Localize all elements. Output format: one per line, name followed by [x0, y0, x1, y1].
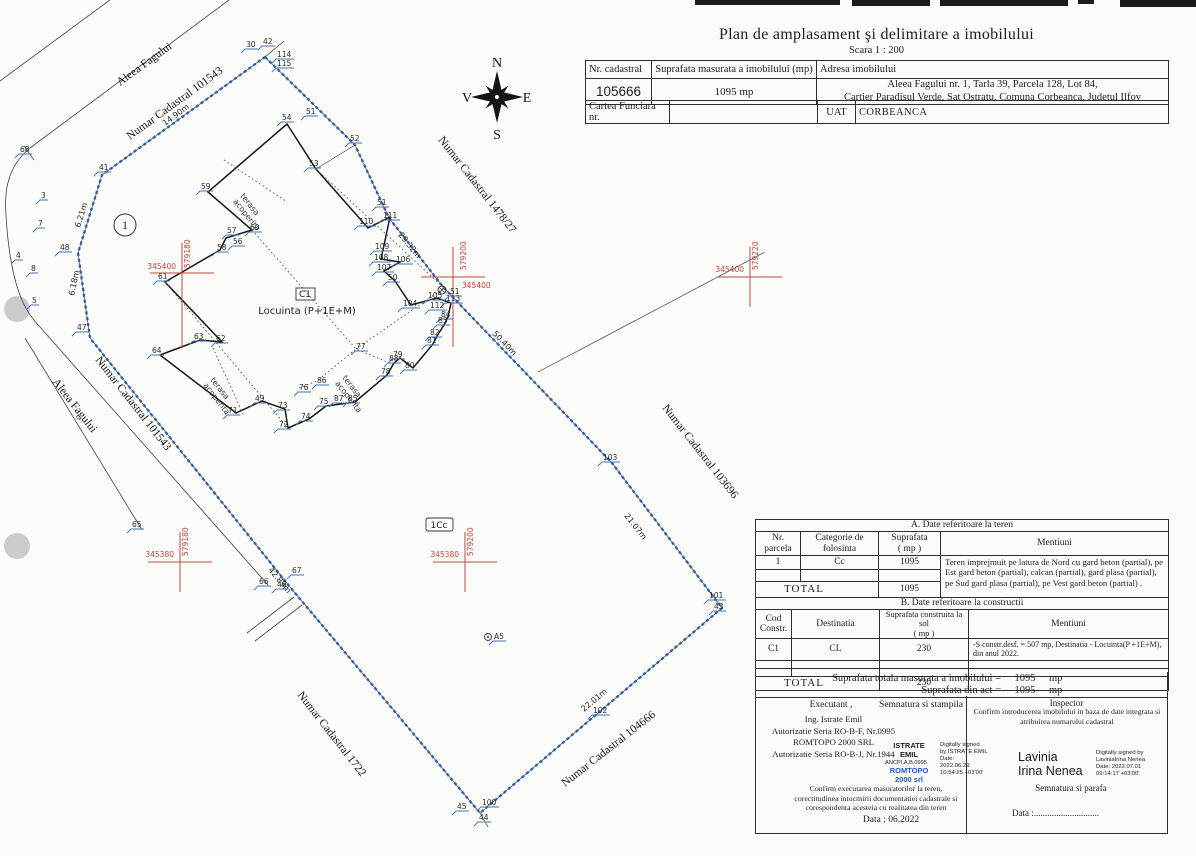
cell-suprafata: 1095 — [879, 556, 941, 570]
svg-text:66: 66 — [259, 577, 269, 586]
svg-text:112: 112 — [430, 301, 445, 310]
executant-confirmation: Confirm executarea masuratorilor la tere… — [790, 784, 962, 813]
svg-text:80: 80 — [405, 361, 415, 370]
svg-text:579220: 579220 — [751, 241, 760, 270]
point-label: 56 — [228, 237, 245, 250]
col-nr-parcela: Nr. parcela — [756, 532, 801, 556]
table-a-caption: A. Date referitoare la teren — [756, 520, 1169, 532]
cell-categorie: Cc — [801, 556, 879, 570]
executant-name: Ing. Istrate Emil — [756, 714, 911, 726]
col-mentiuni: Mentiuni — [941, 532, 1169, 556]
compass-n: N — [492, 56, 502, 71]
col-mentiuni-b: Mentiuni — [969, 610, 1169, 639]
building-label: C1 Locuinta (P+1E+M) — [258, 288, 356, 317]
point-label: 67 — [287, 566, 304, 579]
svg-text:68: 68 — [20, 145, 30, 154]
total-value: 1095 — [879, 582, 941, 598]
grid-coordinate-crosses: 3454005791803454005792003454005792203453… — [145, 239, 782, 592]
svg-text:58: 58 — [217, 243, 227, 252]
svg-text:109: 109 — [375, 242, 390, 251]
svg-text:579180: 579180 — [181, 527, 190, 556]
cartea-funciara-value — [670, 101, 818, 124]
empty-cell — [756, 660, 792, 668]
point-label: 76 — [294, 383, 311, 396]
point-label: 59 — [196, 182, 213, 195]
property-boundary — [78, 57, 722, 813]
hole-punch-marks — [4, 296, 30, 559]
col-suprafata-sol: Suprafata construita la sol ( mp ) — [880, 610, 969, 639]
point-label: 110 — [354, 217, 376, 230]
svg-text:65: 65 — [132, 520, 142, 529]
scan-artifact-top-bars — [695, 0, 1196, 7]
svg-text:45: 45 — [457, 802, 467, 811]
svg-text:4: 4 — [16, 251, 21, 260]
totals-section: Suprafata totala masurata a imobilului =… — [755, 672, 1168, 698]
svg-text:54: 54 — [282, 113, 292, 122]
svg-text:60: 60 — [250, 223, 260, 232]
point-label: 5 — [27, 296, 39, 309]
col-categorie: Categorie de folosinta — [801, 532, 879, 556]
svg-text:47: 47 — [77, 323, 87, 332]
header-table: Nr. cadastral Suprafata masurata a imobi… — [585, 60, 1169, 105]
executant-auth-1: Autorizatie Seria RO-B-F, Nr.0995 — [756, 726, 911, 738]
svg-text:345380: 345380 — [430, 550, 459, 559]
parcel-use-code: 1Cc — [431, 521, 448, 531]
point-label: 4 — [11, 251, 23, 264]
svg-text:71: 71 — [228, 406, 238, 415]
svg-text:85: 85 — [348, 394, 358, 403]
point-label: 8 — [26, 264, 38, 277]
parcel-number-circle: 1 — [114, 214, 136, 236]
scale-label: Scara 1 : 200 — [585, 45, 1168, 56]
point-label: 53 — [304, 159, 321, 172]
svg-text:345400: 345400 — [715, 265, 744, 274]
table-b-caption: B. Date referitoare la constructii — [756, 598, 1169, 610]
cell-nr: 1 — [756, 556, 801, 570]
svg-text:87: 87 — [334, 394, 344, 403]
point-label: 51 — [301, 107, 318, 120]
point-label: 30 — [241, 40, 258, 53]
point-label: 42 — [258, 37, 275, 50]
inspector-confirmation: Confirm introducerea imobilului in baza … — [972, 707, 1162, 726]
svg-text:107: 107 — [377, 263, 392, 272]
point-label: 73 — [273, 401, 290, 414]
inspector-name: Lavinia Irina Nenea — [1018, 750, 1098, 778]
cartea-funciara-label: Cartea Funciara nr. — [586, 101, 670, 124]
svg-text:579180: 579180 — [183, 239, 192, 268]
svg-text:77: 77 — [356, 342, 366, 351]
svg-text:345400: 345400 — [147, 262, 176, 271]
svg-text:579200: 579200 — [459, 241, 468, 270]
header-table-row-3: Cartea Funciara nr. UAT CORBEANCA — [585, 100, 1169, 124]
compass-s: S — [493, 128, 501, 143]
svg-text:100: 100 — [482, 798, 497, 807]
street-label: Numar Cadastral 1722 — [295, 689, 369, 779]
street-label: Numar Cadastral 104666 — [559, 709, 658, 790]
grid-cross: 345380579180 — [145, 527, 212, 592]
dimension-label: 50.40m — [491, 329, 519, 357]
svg-text:72: 72 — [279, 420, 289, 429]
point-label: 48 — [55, 243, 72, 256]
empty-cell — [879, 570, 941, 582]
digital-signature-details-left: Digitally signed by ISTRATE EMIL Date: 2… — [940, 742, 995, 777]
svg-text:51: 51 — [450, 287, 460, 296]
empty-cell — [880, 660, 969, 668]
svg-text:579200: 579200 — [466, 527, 475, 556]
svg-text:53: 53 — [309, 159, 319, 168]
svg-text:75: 75 — [319, 397, 329, 406]
point-label: 58 — [212, 243, 229, 256]
point-label: 47 — [72, 323, 89, 336]
page-title: Plan de amplasament şi delimitare a imob… — [585, 26, 1168, 44]
point-label: 63 — [189, 332, 206, 345]
digital-signature-details-right: Digitally signed by LaviniaIrina Nenea D… — [1096, 750, 1164, 778]
building-name: Locuinta (P+1E+M) — [258, 306, 356, 317]
svg-text:76: 76 — [299, 383, 309, 392]
svg-text:51: 51 — [306, 107, 316, 116]
svg-text:111: 111 — [383, 211, 398, 220]
svg-text:67: 67 — [292, 566, 302, 575]
svg-text:48: 48 — [60, 243, 70, 252]
point-label: 60 — [245, 223, 262, 236]
svg-text:42: 42 — [263, 37, 273, 46]
svg-text:104: 104 — [403, 299, 418, 308]
signature-section: Executant , Semnatura si stampila Ing. I… — [755, 696, 1168, 834]
svg-text:41: 41 — [99, 163, 109, 172]
svg-text:7: 7 — [38, 219, 43, 228]
svg-text:43: 43 — [714, 602, 724, 611]
street-label: Numar Cadastral 103696 — [660, 402, 741, 501]
svg-text:62: 62 — [216, 334, 226, 343]
empty-cell — [801, 570, 879, 582]
point-label: 54 — [277, 113, 294, 126]
col-destinatia: Destinatia — [792, 610, 880, 639]
table-b-empty-row — [756, 660, 1169, 668]
table-a-header-row: Nr. parcela Categorie de folosinta Supra… — [756, 532, 1169, 556]
svg-text:59: 59 — [201, 182, 211, 191]
uat-label: UAT — [818, 101, 856, 124]
total-measured-label: Suprafata totala masurata a imobilului = — [756, 673, 1001, 685]
empty-cell — [756, 570, 801, 582]
svg-text:106: 106 — [396, 255, 411, 264]
svg-text:105: 105 — [428, 291, 443, 300]
svg-text:115: 115 — [277, 59, 292, 68]
svg-text:102: 102 — [593, 706, 608, 715]
point-label: 45 — [452, 802, 469, 815]
digital-stamp-name: ISTRATE EMIL — [884, 742, 934, 759]
svg-text:345400: 345400 — [462, 281, 491, 290]
total-label: TOTAL — [756, 582, 879, 598]
point-label: 3 — [36, 191, 48, 204]
total-measured-row: Suprafata totala masurata a imobilului =… — [756, 673, 1167, 685]
uat-value: CORBEANCA — [856, 101, 1169, 124]
point-label: 103 — [598, 453, 620, 466]
table-a-teren: A. Date referitoare la teren Nr. parcela… — [755, 519, 1169, 598]
parcel-number: 1 — [122, 218, 128, 232]
compass-v: V — [462, 91, 472, 106]
street-label: Numar Cadastral 1478/27 — [436, 134, 519, 235]
digital-stamp-company: ROMTOPO 2000 srl — [884, 767, 934, 784]
svg-text:74: 74 — [301, 412, 311, 421]
survey-point-a5-symbol — [485, 634, 492, 641]
grid-cross: 345380579200 — [430, 527, 497, 592]
header-table-row-1: Nr. cadastral Suprafata masurata a imobi… — [586, 61, 1169, 79]
north-arrow: N S E V — [462, 56, 531, 143]
point-label: 65 — [127, 520, 144, 533]
svg-text:83: 83 — [438, 316, 448, 325]
point-label: 80 — [400, 361, 417, 374]
svg-text:63: 63 — [194, 332, 204, 341]
point-label: 86 — [312, 376, 329, 389]
total-measured-value: 1095 — [1001, 673, 1049, 685]
empty-cell — [792, 660, 880, 668]
point-label: 49 — [250, 394, 267, 407]
svg-text:50: 50 — [388, 273, 398, 282]
total-measured-unit: mp — [1049, 673, 1062, 685]
svg-text:44: 44 — [479, 813, 489, 822]
svg-text:114: 114 — [277, 50, 292, 59]
point-labels: 6841374848547304211411554515253595760565… — [11, 37, 726, 826]
svg-text:8: 8 — [31, 264, 36, 273]
suprafata-header: Suprafata masurata a imobilului (mp) — [652, 61, 817, 79]
adresa-line-1: Aleea Fagului nr. 1, Tarla 39, Parcela 1… — [820, 79, 1165, 92]
grid-cross: 345400579220 — [715, 241, 782, 307]
data-left: Data : 06.2022 — [831, 815, 951, 825]
cell-mentiuni-b: -S constr.desf. = 507 mp, Destinatia - L… — [969, 639, 1169, 661]
svg-text:5: 5 — [32, 296, 37, 305]
svg-text:108: 108 — [374, 253, 389, 262]
svg-text:101: 101 — [709, 591, 724, 600]
svg-text:30: 30 — [246, 40, 256, 49]
table-b-row-1: C1 CL 230 -S constr.desf. = 507 mp, Dest… — [756, 639, 1169, 661]
dimension-label: 21.07m — [622, 512, 648, 542]
point-label: 100 — [477, 798, 499, 811]
data-right: Data :............................. — [1012, 808, 1152, 818]
svg-text:345380: 345380 — [145, 550, 174, 559]
semnatura-parafa-label: Semnatura si parafa — [996, 783, 1146, 793]
svg-text:57: 57 — [227, 226, 237, 235]
point-label: 68 — [15, 145, 32, 158]
road-lines — [0, 0, 765, 827]
cell-cod: C1 — [756, 639, 792, 661]
empty-cell — [969, 660, 1169, 668]
svg-text:51: 51 — [377, 198, 387, 207]
svg-text:86: 86 — [317, 376, 327, 385]
dimension-label: 6.18m — [67, 269, 81, 296]
svg-text:103: 103 — [603, 453, 618, 462]
street-label: Numar Cadastral 101543 — [93, 354, 174, 453]
point-label: 66 — [254, 577, 271, 590]
street-label: Aleea Fagului — [115, 41, 175, 89]
parcel-use-label: 1Cc — [426, 518, 453, 531]
svg-text:88: 88 — [389, 354, 399, 363]
col-cod-constr: Cod Constr. — [756, 610, 792, 639]
svg-text:73: 73 — [278, 401, 288, 410]
col-suprafata: Suprafata ( mp ) — [879, 532, 941, 556]
street-label: Numar Cadastral 101543 — [125, 65, 226, 143]
nr-cadastral-header: Nr. cadastral — [586, 61, 652, 79]
cadastral-plan-page: 1 C1 Locuinta (P+1E+M) 1Cc N S E V Aleea… — [0, 0, 1196, 856]
point-label: 51 — [372, 198, 389, 211]
point-label: 104 — [398, 299, 420, 312]
svg-text:81: 81 — [427, 336, 437, 345]
point-label: 61 — [153, 272, 170, 285]
point-label: 7 — [33, 219, 45, 232]
svg-text:49: 49 — [255, 394, 265, 403]
point-label: 74 — [296, 412, 313, 425]
svg-text:52: 52 — [350, 134, 360, 143]
table-a-row-1: 1 Cc 1095 Teren imprejmuit pe latura de … — [756, 556, 1169, 570]
cell-suprafata-sol: 230 — [880, 639, 969, 661]
point-label: 44 — [474, 813, 491, 826]
svg-text:64: 64 — [152, 346, 162, 355]
point-label: 72 — [274, 420, 291, 433]
svg-text:110: 110 — [359, 217, 374, 226]
building-code: C1 — [299, 290, 311, 300]
svg-text:46: 46 — [277, 580, 287, 589]
compass-e: E — [523, 91, 532, 106]
grid-cross: 345400579180 — [147, 239, 214, 348]
cell-destinatia: CL — [792, 639, 880, 661]
svg-text:56: 56 — [233, 237, 243, 246]
svg-text:3: 3 — [41, 191, 46, 200]
svg-text:61: 61 — [158, 272, 168, 281]
adresa-header: Adresa imobilului — [817, 61, 1169, 79]
table-b-header-row: Cod Constr. Destinatia Suprafata constru… — [756, 610, 1169, 639]
svg-text:A5: A5 — [494, 632, 504, 641]
svg-text:78: 78 — [381, 367, 391, 376]
cell-mentiuni: Teren imprejmuit pe latura de Nord cu ga… — [941, 556, 1169, 598]
